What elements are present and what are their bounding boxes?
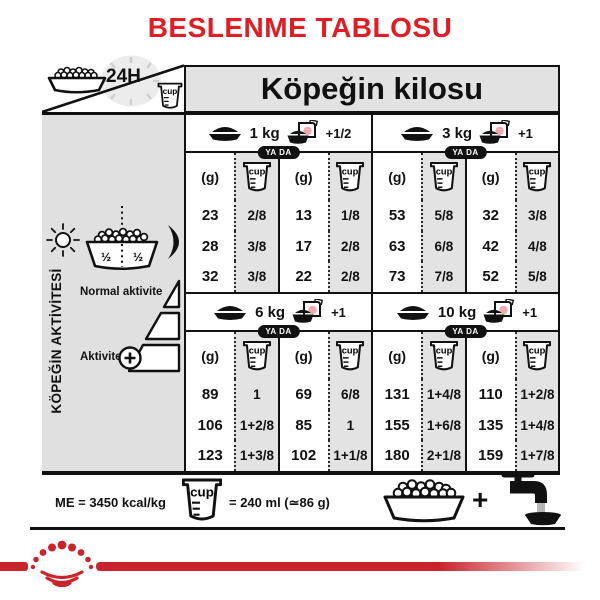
grams-header: (g) [186,332,234,379]
svg-text:cup: cup [342,345,359,355]
sun-icon [45,222,81,258]
g-value: 131 [373,379,421,410]
cup-value: 1 [234,379,277,410]
cup-value: 1+4/8 [421,379,464,410]
section-header: 1 kg +1/2 YA DA [186,115,371,153]
footer-divider [30,527,565,530]
cup-equivalence-label: = 240 ml (≃86 g) [229,495,330,511]
grams-header: (g) [280,332,328,379]
dry-plus-wet-columns: (g)cup 131/8 172/8 222/8 [278,153,372,292]
g-value: 32 [467,200,515,231]
cup-icon: cup [430,161,458,193]
table-row: 1351+4/8 [467,410,559,441]
grams-header: (g) [373,332,421,379]
g-value: 106 [186,410,234,441]
weight-section-6kg: 6 kg +1 YA DA (g)cup 891 1061+2/8 [186,293,372,471]
energy-info-label: ME = 3450 kcal/kg [55,495,166,510]
table-row: 222/8 [280,261,372,292]
wet-add-label: +1/2 [326,126,352,141]
table-row: 424/8 [467,231,559,262]
section-header: 6 kg +1 YA DA [186,294,371,332]
cup-value: 3/8 [515,200,558,231]
table-row: 636/8 [373,231,465,262]
cup-value: 6/8 [328,379,371,410]
weight-label: 6 kg [255,304,285,321]
g-value: 23 [186,200,234,231]
table-row: 1802+1/8 [373,440,465,471]
cup-value: 2+1/8 [421,440,464,471]
svg-text:cup: cup [163,87,178,96]
dry-only-columns: (g)cup 1311+4/8 1551+6/8 1802+1/8 [373,332,465,471]
svg-text:cup: cup [190,485,214,500]
weight-sections-grid: 1 kg +1/2 YA DA (g)cup 232/8 283/8 [184,115,560,471]
g-value: 13 [280,200,328,231]
cup-value: 1/8 [328,200,371,231]
g-value: 89 [186,379,234,410]
svg-text:cup: cup [529,166,546,176]
dry-bowl-icon [211,304,249,321]
table-row: 1591+7/8 [467,440,559,471]
grams-header: (g) [373,153,421,200]
table-row: 737/8 [373,261,465,292]
g-value: 102 [280,440,328,471]
cup-icon-small: cup [157,82,183,110]
table-row: 131/8 [280,200,372,231]
cup-value: 1+6/8 [421,410,464,441]
feeding-table-page: BESLENME TABLOSU 24H cup Köpeğin kilosu [0,0,600,600]
cup-value: 1+3/8 [234,440,277,471]
half-portions-bowl-icon: ½ ½ [79,206,165,278]
g-value: 17 [280,231,328,262]
table-row: 1551+6/8 [373,410,465,441]
cup-value: 2/8 [234,200,277,231]
weight-label: 10 kg [438,304,476,321]
weight-header-label: Köpeğin kilosu [261,71,483,107]
table-row: 525/8 [467,261,559,292]
cup-value: 1+2/8 [234,410,277,441]
svg-text:cup: cup [249,166,266,176]
cup-icon: cup [523,161,551,193]
weight-label: 3 kg [442,125,472,142]
wet-add-label: +1 [331,305,346,320]
moon-icon [162,223,182,261]
g-value: 28 [186,231,234,262]
dry-bowl-icon [206,125,244,142]
dry-only-columns: (g)cup 891 1061+2/8 1231+3/8 [186,332,278,471]
svg-text:cup: cup [249,345,266,355]
grams-header: (g) [186,153,234,200]
dry-plus-wet-columns: (g)cup 696/8 851 1021+1/8 [278,332,372,471]
g-value: 85 [280,410,328,441]
svg-text:cup: cup [529,345,546,355]
half-left-label: ½ [101,250,111,264]
dry-only-columns: (g)cup 535/8 636/8 737/8 [373,153,465,292]
table-row: 851 [280,410,372,441]
cup-value: 1+4/8 [515,410,558,441]
table-row: 1231+3/8 [186,440,278,471]
or-badge: YA DA [257,325,299,338]
page-title: BESLENME TABLOSU [0,12,600,44]
table-row: 283/8 [186,231,278,262]
g-value: 159 [467,440,515,471]
cup-value: 2/8 [328,261,371,292]
g-value: 69 [280,379,328,410]
weight-section-10kg: 10 kg +1 YA DA (g)cup 1311+4/8 1551+6/8 [372,293,558,471]
table-row: 1311+4/8 [373,379,465,410]
section-header: 3 kg +1 YA DA [373,115,558,153]
cup-value: 5/8 [421,200,464,231]
cup-value: 3/8 [234,261,277,292]
royal-canin-crown-logo [30,539,94,587]
g-value: 155 [373,410,421,441]
or-badge: YA DA [444,325,486,338]
g-value: 32 [186,261,234,292]
activity-sidebar: ½ ½ KÖPEĞİN AKTİVİTESİ Normal aktivite A… [42,115,184,471]
cup-icon: cup [243,161,271,193]
cup-icon: cup [430,340,458,372]
g-value: 63 [373,231,421,262]
g-value: 42 [467,231,515,262]
weight-column-header: Köpeğin kilosu [184,65,560,113]
table-row: 323/8 [467,200,559,231]
weight-section-3kg: 3 kg +1 YA DA (g)cup 535/8 636/8 [372,115,558,293]
dry-plus-wet-columns: (g)cup 323/8 424/8 525/8 [465,153,559,292]
g-value: 73 [373,261,421,292]
g-value: 110 [467,379,515,410]
table-row: 1061+2/8 [186,410,278,441]
cup-value: 6/8 [421,231,464,262]
dry-bowl-icon [394,304,432,321]
cup-icon: cup [243,340,271,372]
water-tap-icon [494,470,566,526]
kibble-bowl-footer-icon [378,476,470,524]
wet-pouch-bowl-icon [482,299,516,325]
cup-value: 2/8 [328,231,371,262]
active-activity-label: Aktivite [80,351,122,363]
plus-circle-icon [117,345,143,371]
cup-value: 7/8 [421,261,464,292]
g-value: 180 [373,440,421,471]
dry-bowl-icon [398,125,436,142]
table-row: 1021+1/8 [280,440,372,471]
grams-header: (g) [280,153,328,200]
feeding-table: ½ ½ KÖPEĞİN AKTİVİTESİ Normal aktivite A… [42,112,560,475]
wet-pouch-bowl-icon [291,299,325,325]
svg-text:cup: cup [436,166,453,176]
g-value: 135 [467,410,515,441]
dry-plus-wet-columns: (g)cup 1101+2/8 1351+4/8 1591+7/8 [465,332,559,471]
table-row: 891 [186,379,278,410]
wet-pouch-bowl-icon [478,120,512,146]
grams-header: (g) [467,332,515,379]
cup-icon: cup [336,340,364,372]
svg-text:cup: cup [436,345,453,355]
wet-pouch-bowl-icon [286,120,320,146]
weight-section-1kg: 1 kg +1/2 YA DA (g)cup 232/8 283/8 [186,115,372,293]
cup-value: 1+1/8 [328,440,371,471]
table-row: 232/8 [186,200,278,231]
cup-value: 5/8 [515,261,558,292]
grams-header: (g) [467,153,515,200]
wet-add-label: +1 [522,305,537,320]
table-row: 1101+2/8 [467,379,559,410]
g-value: 53 [373,200,421,231]
or-badge: YA DA [257,146,299,159]
brand-bar-left [0,562,28,571]
section-header: 10 kg +1 YA DA [373,294,558,332]
wet-add-label: +1 [518,126,533,141]
table-row: 172/8 [280,231,372,262]
g-value: 52 [467,261,515,292]
table-row: 696/8 [280,379,372,410]
sidebar-vertical-label: KÖPEĞİN AKTİVİTESİ [49,261,67,421]
cup-icon-footer: cup [182,477,222,523]
cup-icon: cup [523,340,551,372]
svg-text:cup: cup [342,166,359,176]
table-row: 535/8 [373,200,465,231]
half-right-label: ½ [133,250,143,264]
cup-value: 3/8 [234,231,277,262]
g-value: 22 [280,261,328,292]
cup-icon: cup [336,161,364,193]
plus-sign: + [472,484,488,516]
cup-value: 4/8 [515,231,558,262]
weight-label: 1 kg [250,125,280,142]
brand-bar-right [96,562,600,571]
dry-only-columns: (g)cup 232/8 283/8 323/8 [186,153,278,292]
cup-value: 1+7/8 [515,440,558,471]
cup-value: 1+2/8 [515,379,558,410]
table-row: 323/8 [186,261,278,292]
or-badge: YA DA [444,146,486,159]
g-value: 123 [186,440,234,471]
cup-value: 1 [328,410,371,441]
